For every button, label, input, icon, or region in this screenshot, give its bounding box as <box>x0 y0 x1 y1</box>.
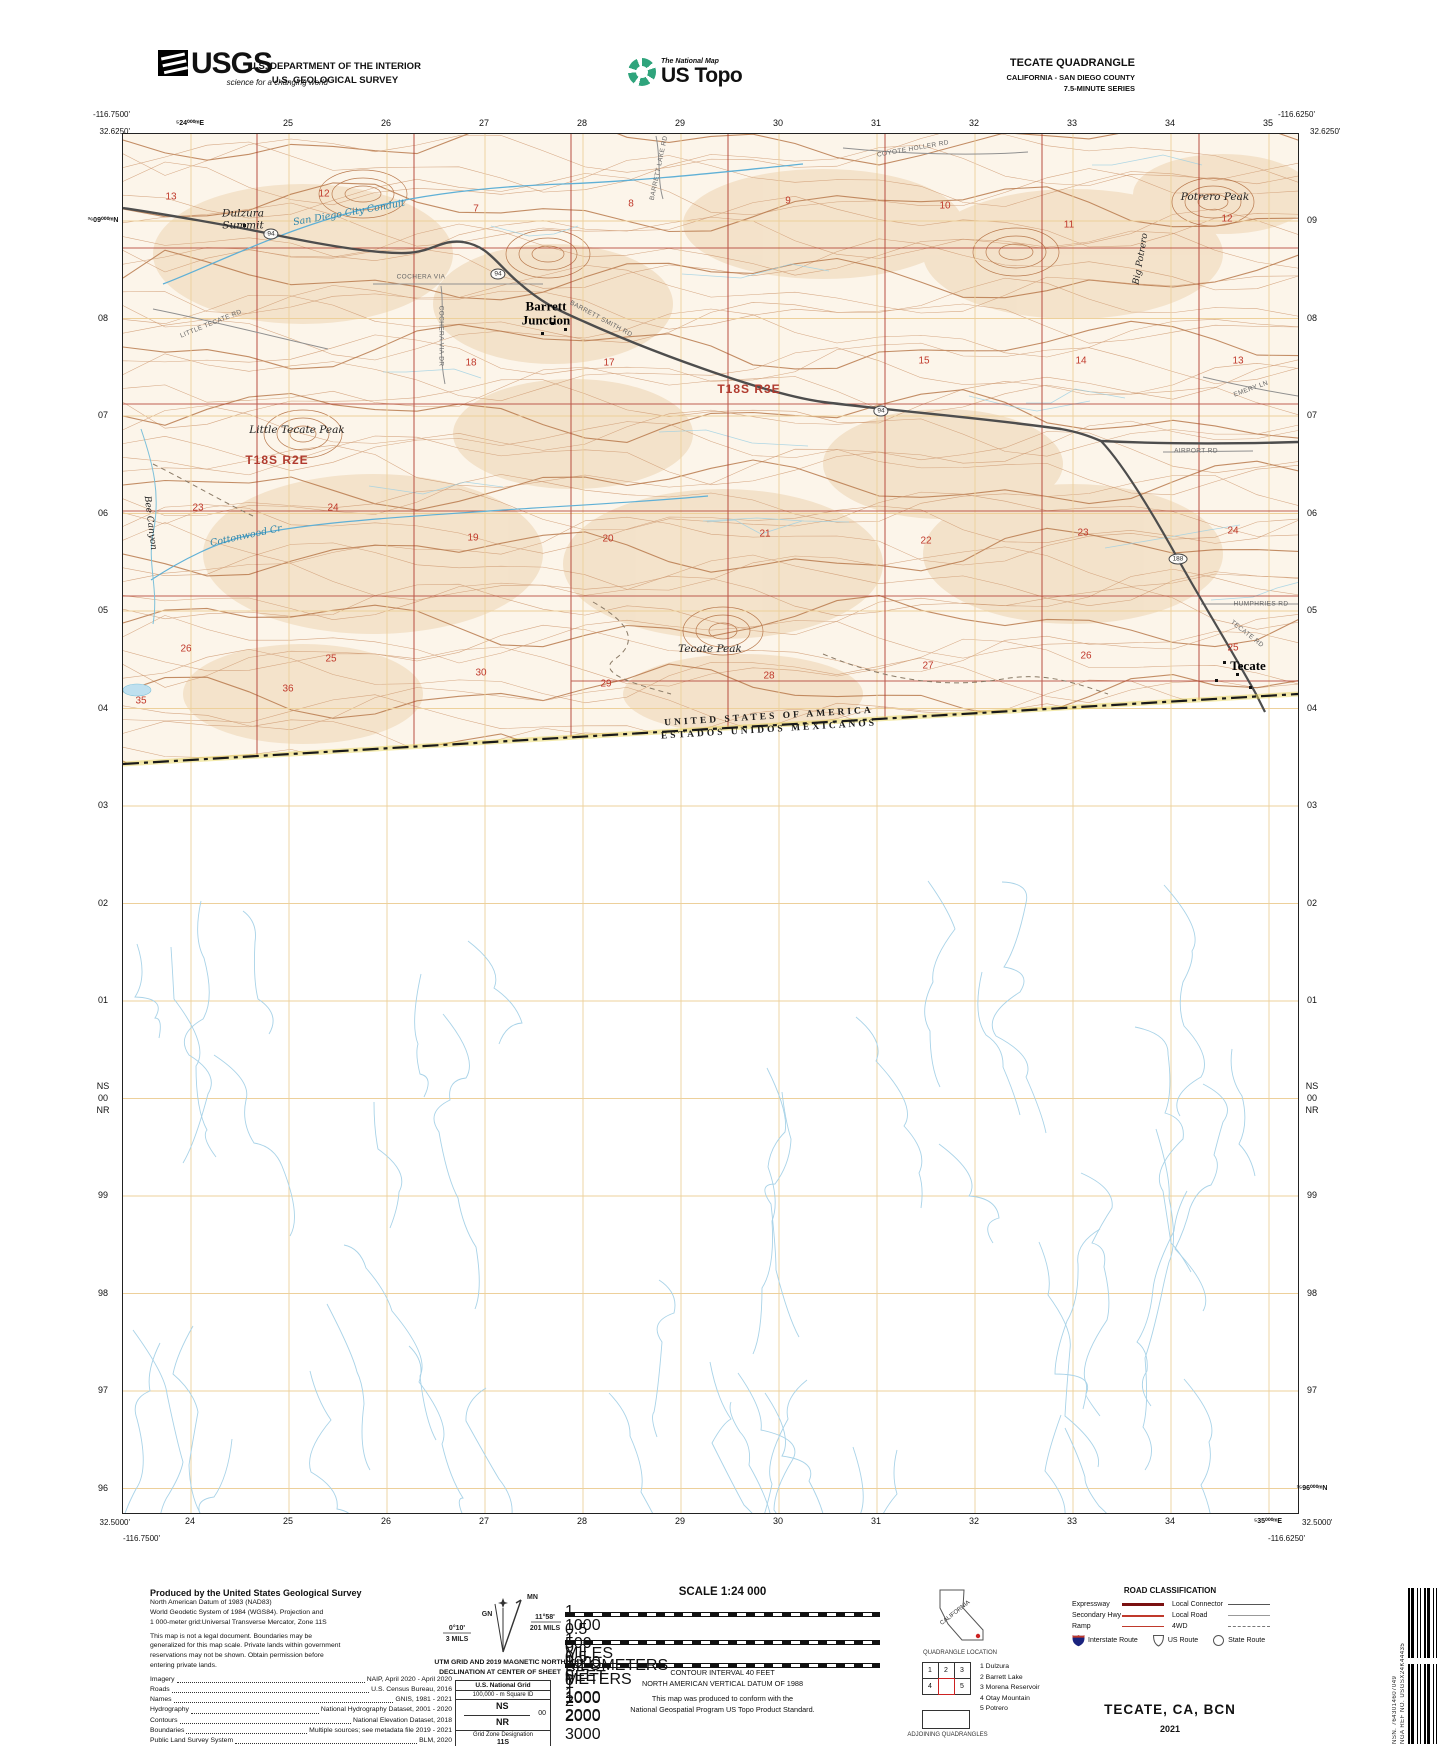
california-outline: CALIFORNIA <box>928 1586 992 1646</box>
shield-ca-94: 94 <box>873 406 888 417</box>
map-label: 28 <box>763 671 774 682</box>
road-class-line-sample <box>1122 1626 1164 1627</box>
conform-note: This map was produced to conform with th… <box>545 1694 900 1716</box>
scale-tick-row: 10.50KILOMETERS12 <box>565 1603 880 1612</box>
source-name: Roads <box>150 1685 170 1695</box>
map-label: 9 <box>785 196 791 207</box>
grid-edge-label: 07 <box>98 410 108 420</box>
grid-edge-label: 08 <box>1307 313 1317 323</box>
grid-edge-label: 00 <box>98 1093 108 1103</box>
us-topo-label: US Topo <box>661 65 742 86</box>
label-coyote-holler-rd: COYOTE HOLLER RD <box>877 139 950 159</box>
grid-edge-label: 05 <box>1307 605 1317 615</box>
road-class-line-sample <box>1122 1603 1164 1606</box>
grid-edge-label: 06 <box>98 508 108 518</box>
road-class-row: Expressway <box>1072 1599 1164 1610</box>
adjoining-quad-cell: 3 <box>954 1662 971 1679</box>
map-label: 11 <box>1064 220 1074 231</box>
source-value: GNIS, 1981 - 2021 <box>395 1695 452 1705</box>
adjoining-quad-name: 3 Morena Reservoir <box>980 1683 1040 1694</box>
grid-edge-label: 33 <box>1067 1516 1077 1526</box>
grid-edge-label: NR <box>1306 1105 1319 1115</box>
source-name: Names <box>150 1695 172 1705</box>
grid-edge-label: ³⁵96⁰⁰⁰ᵐN <box>1297 1484 1328 1492</box>
grid-edge-label: 06 <box>1307 508 1317 518</box>
corner-br-lon: -116.6250' <box>1190 1534 1305 1543</box>
us-route-label: US Route <box>1168 1637 1198 1644</box>
grid-edge-label: 26 <box>381 1516 391 1526</box>
grid-edge-label: 29 <box>675 118 685 128</box>
usng-zone: 11S <box>456 1739 550 1746</box>
adjoining-quads-grid: 12345 <box>922 1662 970 1694</box>
map-label: 29 <box>600 679 611 690</box>
grid-edge-label: 97 <box>98 1385 108 1395</box>
map-label: 18 <box>465 358 476 369</box>
label-bee-canyon: Bee Canyon <box>142 495 159 550</box>
dotted-leader <box>180 1716 351 1724</box>
credits-line: generalized for this map scale. Private … <box>150 1641 452 1651</box>
label-cochera-via: COCHERA VIA <box>397 274 446 281</box>
sheet-id-numbers: NSN. 7643014607049 NGA REF NO. USGSX24K4… <box>1392 1588 1406 1744</box>
grid-edge-label: 99 <box>1307 1190 1317 1200</box>
gn-mils: 3 MILS <box>446 1636 469 1643</box>
grid-edge-label: 34 <box>1165 1516 1175 1526</box>
adjoining-quads-caption: ADJOINING QUADRANGLES <box>890 1732 1005 1738</box>
mn-mils: 201 MILS <box>530 1625 561 1632</box>
grid-edge-label: 02 <box>1307 898 1317 908</box>
map-label: 24 <box>1227 526 1238 537</box>
mn-degrees: 11°58' <box>535 1613 555 1621</box>
label-t18s-r2e: T18S R2E <box>245 453 308 467</box>
corner-br-lat: 32.5000' <box>1302 1518 1332 1527</box>
sheet-title: TECATE, CA, BCN <box>1080 1702 1260 1717</box>
credits-line: 1 000-meter grid:Universal Transverse Me… <box>150 1618 452 1628</box>
grid-edge-label: 33 <box>1067 118 1077 128</box>
road-class-row: 4WD <box>1172 1621 1270 1632</box>
road-classification-title: ROAD CLASSIFICATION <box>1080 1586 1260 1595</box>
map-label: 23 <box>1077 528 1088 539</box>
adjoining-quad-name: 1 Dulzura <box>980 1662 1040 1673</box>
data-sources-list: ImageryNAIP, April 2020 - April 2020Road… <box>150 1675 452 1746</box>
us-route-shield-icon <box>1152 1634 1165 1647</box>
contour-note: CONTOUR INTERVAL 40 FEET NORTH AMERICAN … <box>565 1668 880 1690</box>
usng-zone-label: Grid Zone Designation <box>456 1730 550 1739</box>
route-shield-legend: Interstate Route US Route State Route <box>1072 1634 1272 1647</box>
grid-edge-label: 08 <box>98 313 108 323</box>
quad-state-county: CALIFORNIA - SAN DIEGO COUNTY <box>930 72 1135 83</box>
barcode <box>1408 1664 1438 1744</box>
map-label: 13 <box>165 192 176 203</box>
us-topo-icon <box>628 58 656 86</box>
scale-title: SCALE 1:24 000 <box>565 1586 880 1598</box>
declination-diagram: GN MN 0°10' 3 MILS 11°58' 201 MILS <box>437 1590 567 1660</box>
road-class-row: Local Road <box>1172 1610 1270 1621</box>
label-cottonwood-cr: Cottonwood Cr <box>209 523 283 549</box>
road-class-label: 4WD <box>1172 1623 1188 1630</box>
label-san-diego-city-conduit: San Diego City Conduit <box>292 198 405 228</box>
road-class-label: Local Road <box>1172 1612 1207 1619</box>
credits-line: This map is not a legal document. Bounda… <box>150 1632 452 1642</box>
grid-edge-label: 98 <box>98 1288 108 1298</box>
interstate-shield-icon <box>1072 1634 1085 1647</box>
adjoining-quads-names: 1 Dulzura2 Barrett Lake3 Morena Reservoi… <box>980 1662 1040 1715</box>
map-label: 25 <box>1227 643 1238 654</box>
dotted-leader <box>177 1675 365 1683</box>
map-label: 15 <box>918 356 929 367</box>
grid-edge-label: 25 <box>283 1516 293 1526</box>
true-north-star-icon <box>498 1598 508 1608</box>
grid-edge-label: 98 <box>1307 1288 1317 1298</box>
grid-edge-label: 07 <box>1307 410 1317 420</box>
nga-ref-number: NGA REF NO. USGSX24K44435 <box>1400 1588 1406 1744</box>
label-dulzura-summit: Dulzura Summit <box>222 208 264 231</box>
credits-line: North American Datum of 1983 (NAD83) <box>150 1598 452 1608</box>
road-class-left-column: ExpresswaySecondary HwyRamp <box>1072 1599 1164 1632</box>
source-value: BLM, 2020 <box>419 1736 452 1746</box>
quadrangle-location-caption: QUADRANGLE LOCATION <box>900 1650 1020 1656</box>
grid-edge-label: 01 <box>1307 995 1317 1005</box>
source-value: U.S. Census Bureau, 2016 <box>371 1685 452 1695</box>
map-label: 17 <box>603 358 614 369</box>
dotted-leader <box>186 1726 307 1734</box>
source-name: Contours <box>150 1716 178 1726</box>
map-label: 8 <box>628 199 634 210</box>
label-barrett-smith-rd: BARRETT SMITH RD <box>569 300 634 339</box>
corner-bl-lat: 32.5000' <box>50 1518 130 1527</box>
map-label: 7 <box>473 204 479 215</box>
map-label: 26 <box>1080 651 1091 662</box>
quadrangle-heading: TECATE QUADRANGLE CALIFORNIA - SAN DIEGO… <box>930 55 1135 94</box>
map-label: 23 <box>192 503 203 514</box>
source-value: National Elevation Dataset, 2018 <box>353 1716 452 1726</box>
map-label: 10 <box>939 201 950 212</box>
label-cochera-via-dr: COCHERA VIA DR <box>438 306 445 367</box>
adjoining-quad-name: 5 Potrero <box>980 1704 1040 1715</box>
grid-edge-label: 00 <box>1307 1093 1317 1103</box>
grid-edge-label: 27 <box>479 118 489 128</box>
grid-edge-label: ⁵24⁰⁰⁰ᵐE <box>176 119 204 127</box>
corner-tr-lat: 32.6250' <box>1310 127 1340 136</box>
grid-edge-label: 24 <box>185 1516 195 1526</box>
quad-title: TECATE QUADRANGLE <box>930 55 1135 72</box>
dotted-leader <box>191 1705 319 1713</box>
label-potrero-peak: Potrero Peak <box>1181 191 1250 203</box>
adjoining-quad-name: 2 Barrett Lake <box>980 1673 1040 1684</box>
road-class-label: Secondary Hwy <box>1072 1612 1121 1619</box>
map-label: 35 <box>135 696 146 707</box>
usgs-wave-icon <box>158 50 188 76</box>
grid-edge-label: 26 <box>381 118 391 128</box>
usng-id-nr: NR <box>496 1717 509 1727</box>
state-route-shield-icon <box>1212 1634 1225 1647</box>
road-class-line-sample <box>1122 1615 1164 1617</box>
road-class-line-sample <box>1228 1615 1270 1616</box>
map-label: 22 <box>920 536 931 547</box>
barcode <box>1408 1588 1438 1658</box>
adjoining-quad-cell: 1 <box>922 1662 939 1679</box>
grid-edge-label: 09 <box>1307 215 1317 225</box>
map-label: 12 <box>318 189 329 200</box>
grid-edge-label: 35 <box>1263 118 1273 128</box>
label-barrett-lake-rd: BARRETT LAKE RD <box>649 135 670 201</box>
scale-tick-row: 1000010002000300040005000600070008000900… <box>565 1654 880 1663</box>
map-label: 21 <box>759 529 770 540</box>
dept-line1: U.S. DEPARTMENT OF THE INTERIOR <box>240 60 430 74</box>
label-emery-ln: EMERY LN <box>1233 380 1269 399</box>
grid-edge-label: 99 <box>98 1190 108 1200</box>
dotted-leader <box>235 1736 417 1744</box>
road-class-right-column: Local ConnectorLocal Road4WD <box>1172 1599 1270 1632</box>
adjoining-quad-name: 4 Otay Mountain <box>980 1694 1040 1705</box>
map-label: 24 <box>327 503 338 514</box>
quad-location-dot <box>976 1634 980 1638</box>
shield-ca-188: 188 <box>1169 554 1188 565</box>
map-label: 36 <box>282 684 293 695</box>
road-class-row: Local Connector <box>1172 1599 1270 1610</box>
shield-ca-94: 94 <box>263 229 278 240</box>
map-label: 12 <box>1221 214 1232 225</box>
sheet-year: 2021 <box>1080 1724 1260 1734</box>
map-label: 26 <box>180 644 191 655</box>
shield-ca-94: 94 <box>490 269 505 280</box>
grid-edge-label: 97 <box>1307 1385 1317 1395</box>
national-map-logo: The National Map US Topo <box>628 58 742 86</box>
grid-edge-label: 29 <box>675 1516 685 1526</box>
road-class-label: Local Connector <box>1172 1601 1223 1608</box>
corner-bl-lon: -116.7500' <box>70 1534 160 1543</box>
grid-edge-label: 04 <box>98 703 108 713</box>
grid-edge-label: 31 <box>871 1516 881 1526</box>
grid-edge-label: 01 <box>98 995 108 1005</box>
department-heading: U.S. DEPARTMENT OF THE INTERIOR U.S. GEO… <box>240 60 430 89</box>
grid-edge-label: ³⁶09⁰⁰⁰ᵐN <box>88 216 119 224</box>
interstate-route-label: Interstate Route <box>1088 1637 1138 1644</box>
quad-series: 7.5-MINUTE SERIES <box>930 83 1135 94</box>
gn-degrees: 0°10' <box>449 1624 465 1632</box>
corner-tl-lat: 32.6250' <box>30 127 130 136</box>
usng-square-id-label: 100,000 - m Square ID <box>456 1691 550 1700</box>
adjoining-quad-cell <box>938 1678 955 1695</box>
label-big-potrero: Big Potrero <box>1132 232 1151 285</box>
grid-edge-label: 05 <box>98 605 108 615</box>
label-humphries-rd: HUMPHRIES RD <box>1234 601 1289 608</box>
grid-edge-label: NS <box>97 1081 110 1091</box>
scale-unit-row: MILES <box>565 1645 880 1654</box>
grid-edge-label: ⁵35⁰⁰⁰ᵐE <box>1254 1517 1282 1525</box>
data-source-row: NamesGNIS, 1981 - 2021 <box>150 1695 452 1705</box>
label-tecate-peak: Tecate Peak <box>678 643 742 655</box>
usng-title: U.S. National Grid <box>456 1681 550 1691</box>
data-source-row: HydrographyNational Hydrography Dataset,… <box>150 1705 452 1715</box>
grid-edge-label: 28 <box>577 118 587 128</box>
map-canvas[interactable]: Dulzura SummitBarrett JunctionTecateLitt… <box>122 133 1299 1514</box>
grid-edge-label: 30 <box>773 118 783 128</box>
grid-edge-label: 25 <box>283 118 293 128</box>
scale-tick-row: 10005000METERS10002000 <box>565 1617 880 1626</box>
usng-id-ns: NS <box>496 1701 509 1711</box>
grid-edge-label: 34 <box>1165 118 1175 128</box>
corner-tl-lon: -116.7500' <box>40 110 130 119</box>
map-label-layer: Dulzura SummitBarrett JunctionTecateLitt… <box>123 134 1298 1513</box>
grid-edge-label: 30 <box>773 1516 783 1526</box>
source-name: Imagery <box>150 1675 175 1685</box>
grid-edge-label: 03 <box>1307 800 1317 810</box>
label-airport-rd: AIRPORT RD <box>1174 448 1218 455</box>
grid-edge-label: 03 <box>98 800 108 810</box>
credits-title: Produced by the United States Geological… <box>150 1588 452 1598</box>
road-class-line-sample <box>1228 1626 1270 1627</box>
data-source-row: ContoursNational Elevation Dataset, 2018 <box>150 1716 452 1726</box>
grid-edge-label: 04 <box>1307 703 1317 713</box>
dept-line2: U.S. GEOLOGICAL SURVEY <box>240 74 430 88</box>
grid-edge-label: 02 <box>98 898 108 908</box>
ustopo-map-sheet: USGS science for a changing world U.S. D… <box>0 0 1445 1746</box>
grid-edge-label: 32 <box>969 1516 979 1526</box>
grid-edge-label: 31 <box>871 118 881 128</box>
label-t18s-r3e: T18S R3E <box>717 382 780 396</box>
map-label: 30 <box>475 668 486 679</box>
adjoining-quad-cell: 5 <box>954 1678 971 1695</box>
road-class-label: Expressway <box>1072 1601 1110 1608</box>
source-name: Public Land Survey System <box>150 1736 233 1746</box>
data-source-row: RoadsU.S. Census Bureau, 2016 <box>150 1685 452 1695</box>
map-label: 19 <box>467 533 478 544</box>
grid-edge-label: NS <box>1306 1081 1319 1091</box>
map-label: 27 <box>922 661 933 672</box>
source-name: Boundaries <box>150 1726 184 1736</box>
label-little-tecate-peak: Little Tecate Peak <box>249 424 344 436</box>
scale-bars: 10.50KILOMETERS1210005000METERS100020001… <box>565 1603 880 1677</box>
scale-tick-label: 3000 <box>565 1726 880 1744</box>
map-label: 14 <box>1075 356 1086 367</box>
dotted-leader <box>174 1695 394 1703</box>
adjoining-quad-cell: 2 <box>938 1662 955 1679</box>
gn-label: GN <box>482 1611 493 1618</box>
source-value: Multiple sources; see metadata file 2019… <box>309 1726 452 1736</box>
road-class-row: Secondary Hwy <box>1072 1610 1164 1621</box>
adjoining-quads-south-cell <box>922 1710 970 1729</box>
grid-edge-label: NR <box>97 1105 110 1115</box>
state-route-label: State Route <box>1228 1637 1265 1644</box>
map-label: 20 <box>602 534 613 545</box>
source-value: National Hydrography Dataset, 2001 - 202… <box>321 1705 452 1715</box>
adjoining-quad-cell: 4 <box>922 1678 939 1695</box>
grid-edge-label: 32 <box>969 118 979 128</box>
data-source-row: BoundariesMultiple sources; see metadata… <box>150 1726 452 1736</box>
nsn-number: NSN. 7643014607049 <box>1392 1588 1398 1744</box>
map-label: 25 <box>325 654 336 665</box>
grid-edge-label: 96 <box>98 1483 108 1493</box>
grid-edge-label: 28 <box>577 1516 587 1526</box>
mn-label: MN <box>527 1594 538 1601</box>
map-label: 13 <box>1232 356 1243 367</box>
road-class-row: Ramp <box>1072 1621 1164 1632</box>
road-class-label: Ramp <box>1072 1623 1091 1630</box>
scale-tick-row: 10.501 <box>565 1631 880 1640</box>
label-barrett-junction: Barrett Junction <box>522 300 570 329</box>
label-tecate: Tecate <box>1230 658 1266 674</box>
data-source-row: Public Land Survey SystemBLM, 2020 <box>150 1736 452 1746</box>
road-class-line-sample <box>1228 1604 1270 1605</box>
corner-tr-lon: -116.6250' <box>1278 110 1315 119</box>
usng-box: U.S. National Grid 100,000 - m Square ID… <box>455 1680 551 1746</box>
grid-edge-label: 27 <box>479 1516 489 1526</box>
credits-line: World Geodetic System of 1984 (WGS84). P… <box>150 1608 452 1618</box>
label-little-tecate-rd: LITTLE TECATE RD <box>179 308 243 339</box>
dotted-leader <box>172 1685 369 1693</box>
source-name: Hydrography <box>150 1705 189 1715</box>
